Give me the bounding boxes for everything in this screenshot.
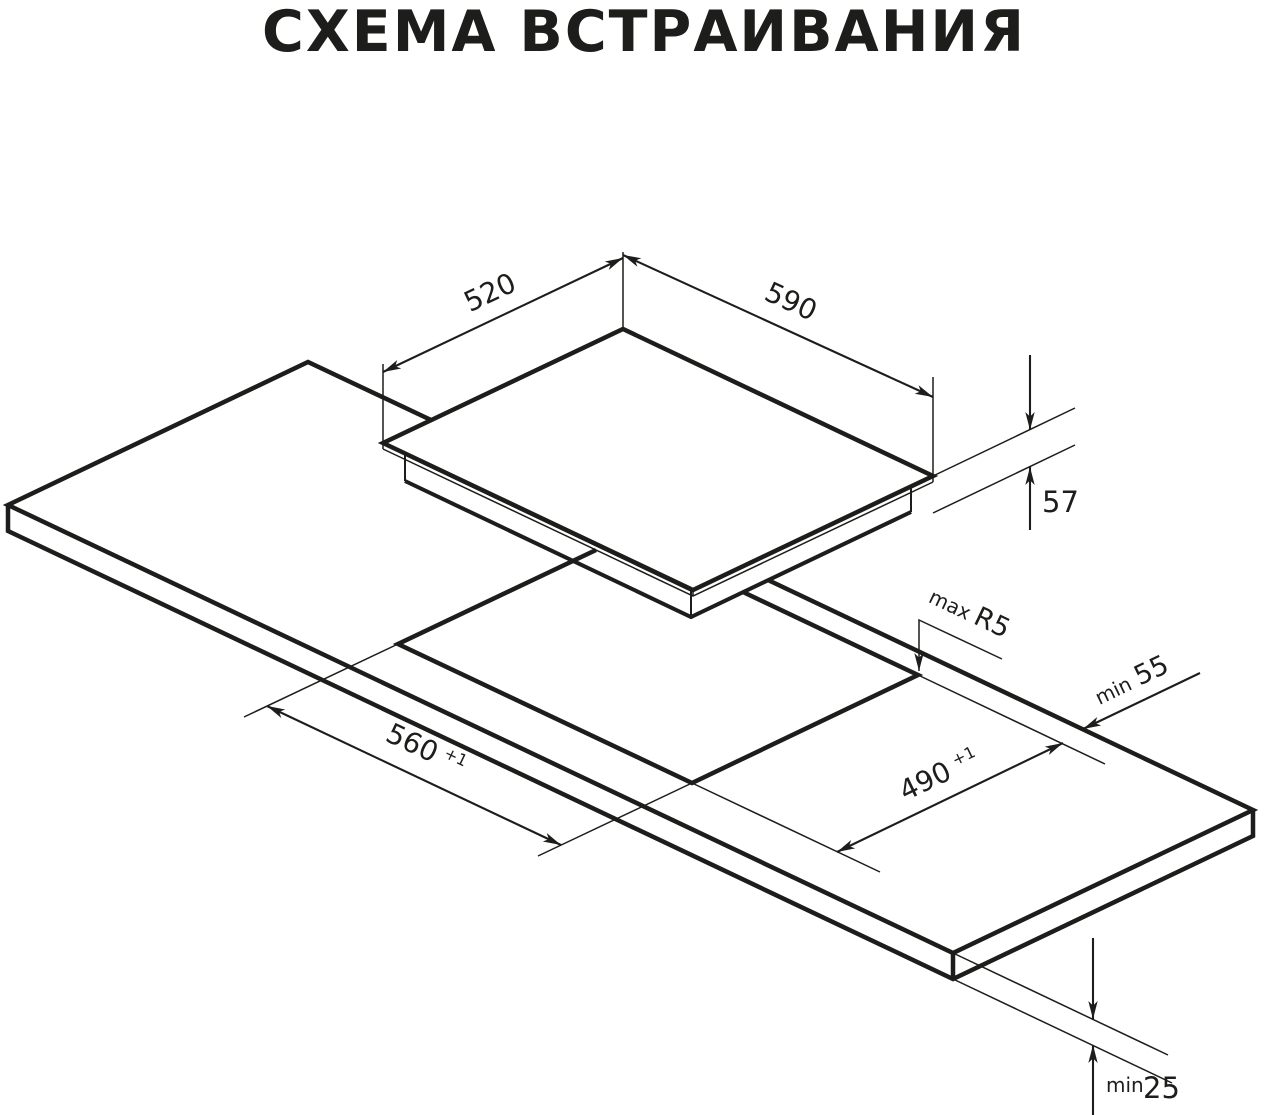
installation-diagram-page: СХЕМА ВСТРАИВАНИЯ 520 590 57 xyxy=(0,0,1288,1115)
dim-cooktop-length: 590 xyxy=(623,255,933,476)
cutout-length-value: 560 xyxy=(381,717,443,770)
dim-25-reference-lines xyxy=(953,953,1172,1083)
cutout-width-label: 490+1 xyxy=(894,741,984,807)
dim-cutout-width: 490+1 xyxy=(692,675,1105,872)
cooktop-body-bottom-edge xyxy=(405,481,911,617)
cooktop-glass-top xyxy=(383,329,933,590)
rear-distance-prefix: min xyxy=(1091,672,1135,710)
worktop xyxy=(8,362,1253,979)
installation-diagram: СХЕМА ВСТРАИВАНИЯ 520 590 57 xyxy=(0,0,1288,1115)
cooktop xyxy=(383,329,933,617)
page-title: СХЕМА ВСТРАИВАНИЯ xyxy=(262,0,1026,65)
corner-radius-value: R5 xyxy=(969,601,1015,644)
dim-490-extension-lines xyxy=(692,675,1105,872)
worktop-thickness xyxy=(8,505,1253,979)
cooktop-height-label: 57 xyxy=(1042,485,1079,519)
corner-radius-prefix: max xyxy=(925,584,975,624)
cutout-width-tolerance: +1 xyxy=(949,742,978,769)
cooktop-length-label: 590 xyxy=(760,275,822,327)
worktop-top-face xyxy=(8,362,1253,953)
cooktop-body-corner-edges xyxy=(405,455,911,617)
dim-490-line xyxy=(837,743,1063,852)
worktop-thickness-prefix: min xyxy=(1106,1073,1144,1097)
cutout-length-label: 560+1 xyxy=(381,717,471,783)
worktop-thickness-value: 25 xyxy=(1143,1071,1180,1105)
cooktop-body-top-edge xyxy=(405,455,911,591)
corner-radius-label: maxR5 xyxy=(924,580,1015,645)
worktop-thickness-label: min25 xyxy=(1106,1071,1180,1105)
rear-distance-label: min55 xyxy=(1089,649,1174,711)
cutout-outline xyxy=(398,550,918,783)
rear-distance-value: 55 xyxy=(1129,649,1173,692)
dim-rear-distance: min55 xyxy=(1083,649,1200,729)
dim-cooktop-height: 57 xyxy=(933,355,1079,530)
worktop-cutout xyxy=(398,550,918,783)
